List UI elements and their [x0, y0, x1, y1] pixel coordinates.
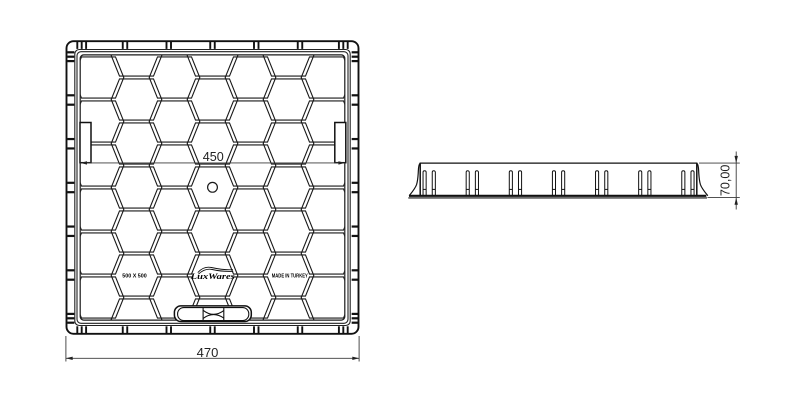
svg-text:450: 450	[203, 150, 224, 164]
svg-text:LuxWares: LuxWares	[189, 272, 234, 281]
svg-text:MADE IN TURKEY: MADE IN TURKEY	[272, 274, 308, 280]
svg-text:500 X 500: 500 X 500	[122, 273, 147, 279]
svg-text:70,00: 70,00	[719, 165, 733, 197]
svg-text:470: 470	[197, 345, 219, 360]
